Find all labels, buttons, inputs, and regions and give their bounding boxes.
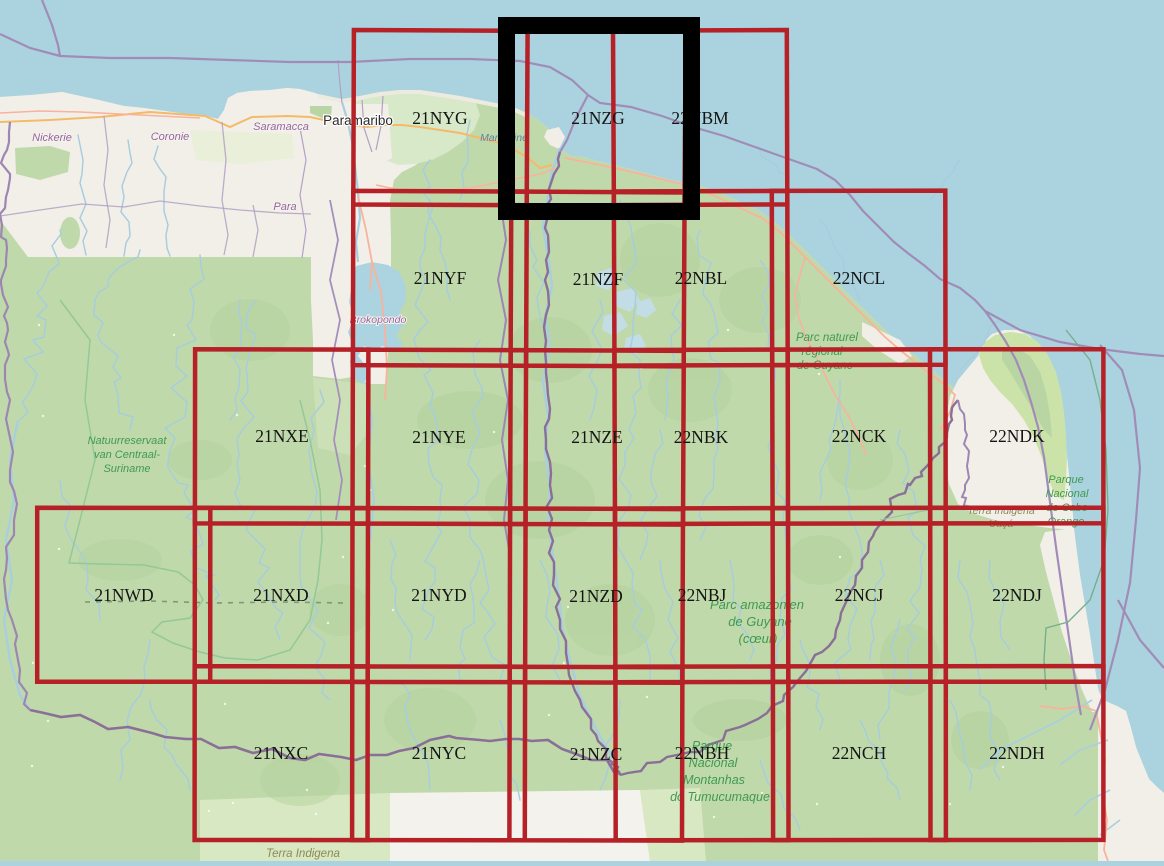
svg-text:21NWD: 21NWD <box>94 585 153 605</box>
svg-text:21NXD: 21NXD <box>253 585 308 605</box>
svg-text:21NYC: 21NYC <box>412 743 466 763</box>
svg-text:Paramaribo: Paramaribo <box>323 113 393 128</box>
svg-text:21NZC: 21NZC <box>570 744 623 764</box>
svg-text:22NBL: 22NBL <box>675 268 728 288</box>
svg-text:21NYD: 21NYD <box>411 585 466 605</box>
svg-text:Coronie: Coronie <box>151 131 190 143</box>
svg-text:Terra Indigena: Terra Indigena <box>266 848 340 860</box>
svg-text:22NDK: 22NDK <box>989 426 1045 446</box>
svg-text:de Guyane: de Guyane <box>728 614 792 629</box>
svg-text:Suriname: Suriname <box>103 463 150 475</box>
svg-text:21NZD: 21NZD <box>569 586 622 606</box>
svg-text:21NZE: 21NZE <box>571 427 623 447</box>
svg-text:21NZG: 21NZG <box>571 108 625 128</box>
svg-text:do Tumucumaque: do Tumucumaque <box>670 790 770 804</box>
svg-text:21NZF: 21NZF <box>573 269 624 289</box>
svg-text:22NCH: 22NCH <box>832 743 887 763</box>
svg-text:Montanhas: Montanhas <box>683 773 745 787</box>
svg-text:22NCK: 22NCK <box>832 426 887 446</box>
svg-text:Parque: Parque <box>1048 474 1083 486</box>
svg-text:22NDH: 22NDH <box>989 743 1045 763</box>
svg-text:Para: Para <box>273 201 296 213</box>
svg-text:21NXE: 21NXE <box>255 426 308 446</box>
svg-text:Nickerie: Nickerie <box>32 132 72 144</box>
svg-text:Saramacca: Saramacca <box>253 121 309 133</box>
svg-text:22NDJ: 22NDJ <box>992 585 1042 605</box>
svg-text:22NCL: 22NCL <box>833 268 886 288</box>
svg-text:22NBJ: 22NBJ <box>678 585 727 605</box>
svg-text:22NBM: 22NBM <box>671 108 729 128</box>
svg-text:21NYF: 21NYF <box>414 268 467 288</box>
svg-text:22NCJ: 22NCJ <box>835 585 884 605</box>
svg-text:21NXC: 21NXC <box>254 743 308 763</box>
svg-text:van Centraal-: van Centraal- <box>94 449 160 461</box>
svg-text:21NYG: 21NYG <box>412 108 468 128</box>
svg-text:Natuurreservaat: Natuurreservaat <box>88 435 168 447</box>
svg-text:Brokopondo: Brokopondo <box>350 314 407 326</box>
svg-text:21NYE: 21NYE <box>412 427 465 447</box>
svg-text:Nacional: Nacional <box>1046 488 1089 500</box>
svg-text:22NBH: 22NBH <box>675 743 730 763</box>
svg-text:Parc naturel: Parc naturel <box>796 332 858 344</box>
svg-text:22NBK: 22NBK <box>674 427 729 447</box>
